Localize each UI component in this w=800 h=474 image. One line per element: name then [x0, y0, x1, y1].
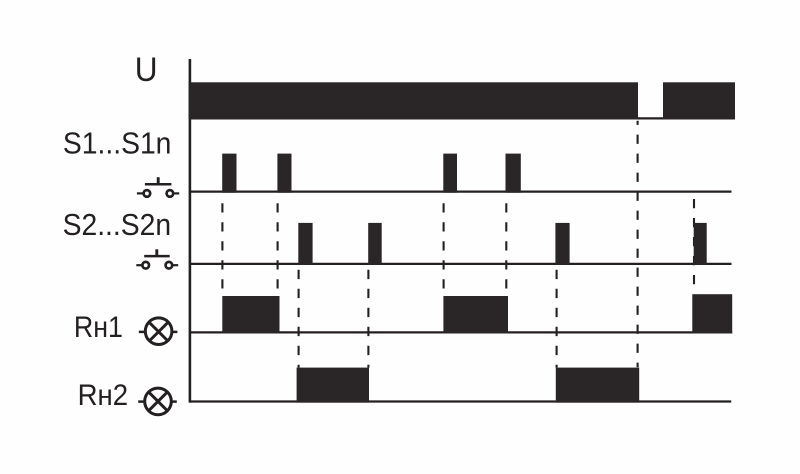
- svg-text:U: U: [135, 51, 158, 90]
- svg-text:Rн2: Rн2: [78, 379, 129, 412]
- svg-text:Rн1: Rн1: [74, 311, 123, 345]
- svg-text:S2...S2n: S2...S2n: [63, 208, 172, 242]
- svg-text:S1...S1n: S1...S1n: [63, 127, 172, 161]
